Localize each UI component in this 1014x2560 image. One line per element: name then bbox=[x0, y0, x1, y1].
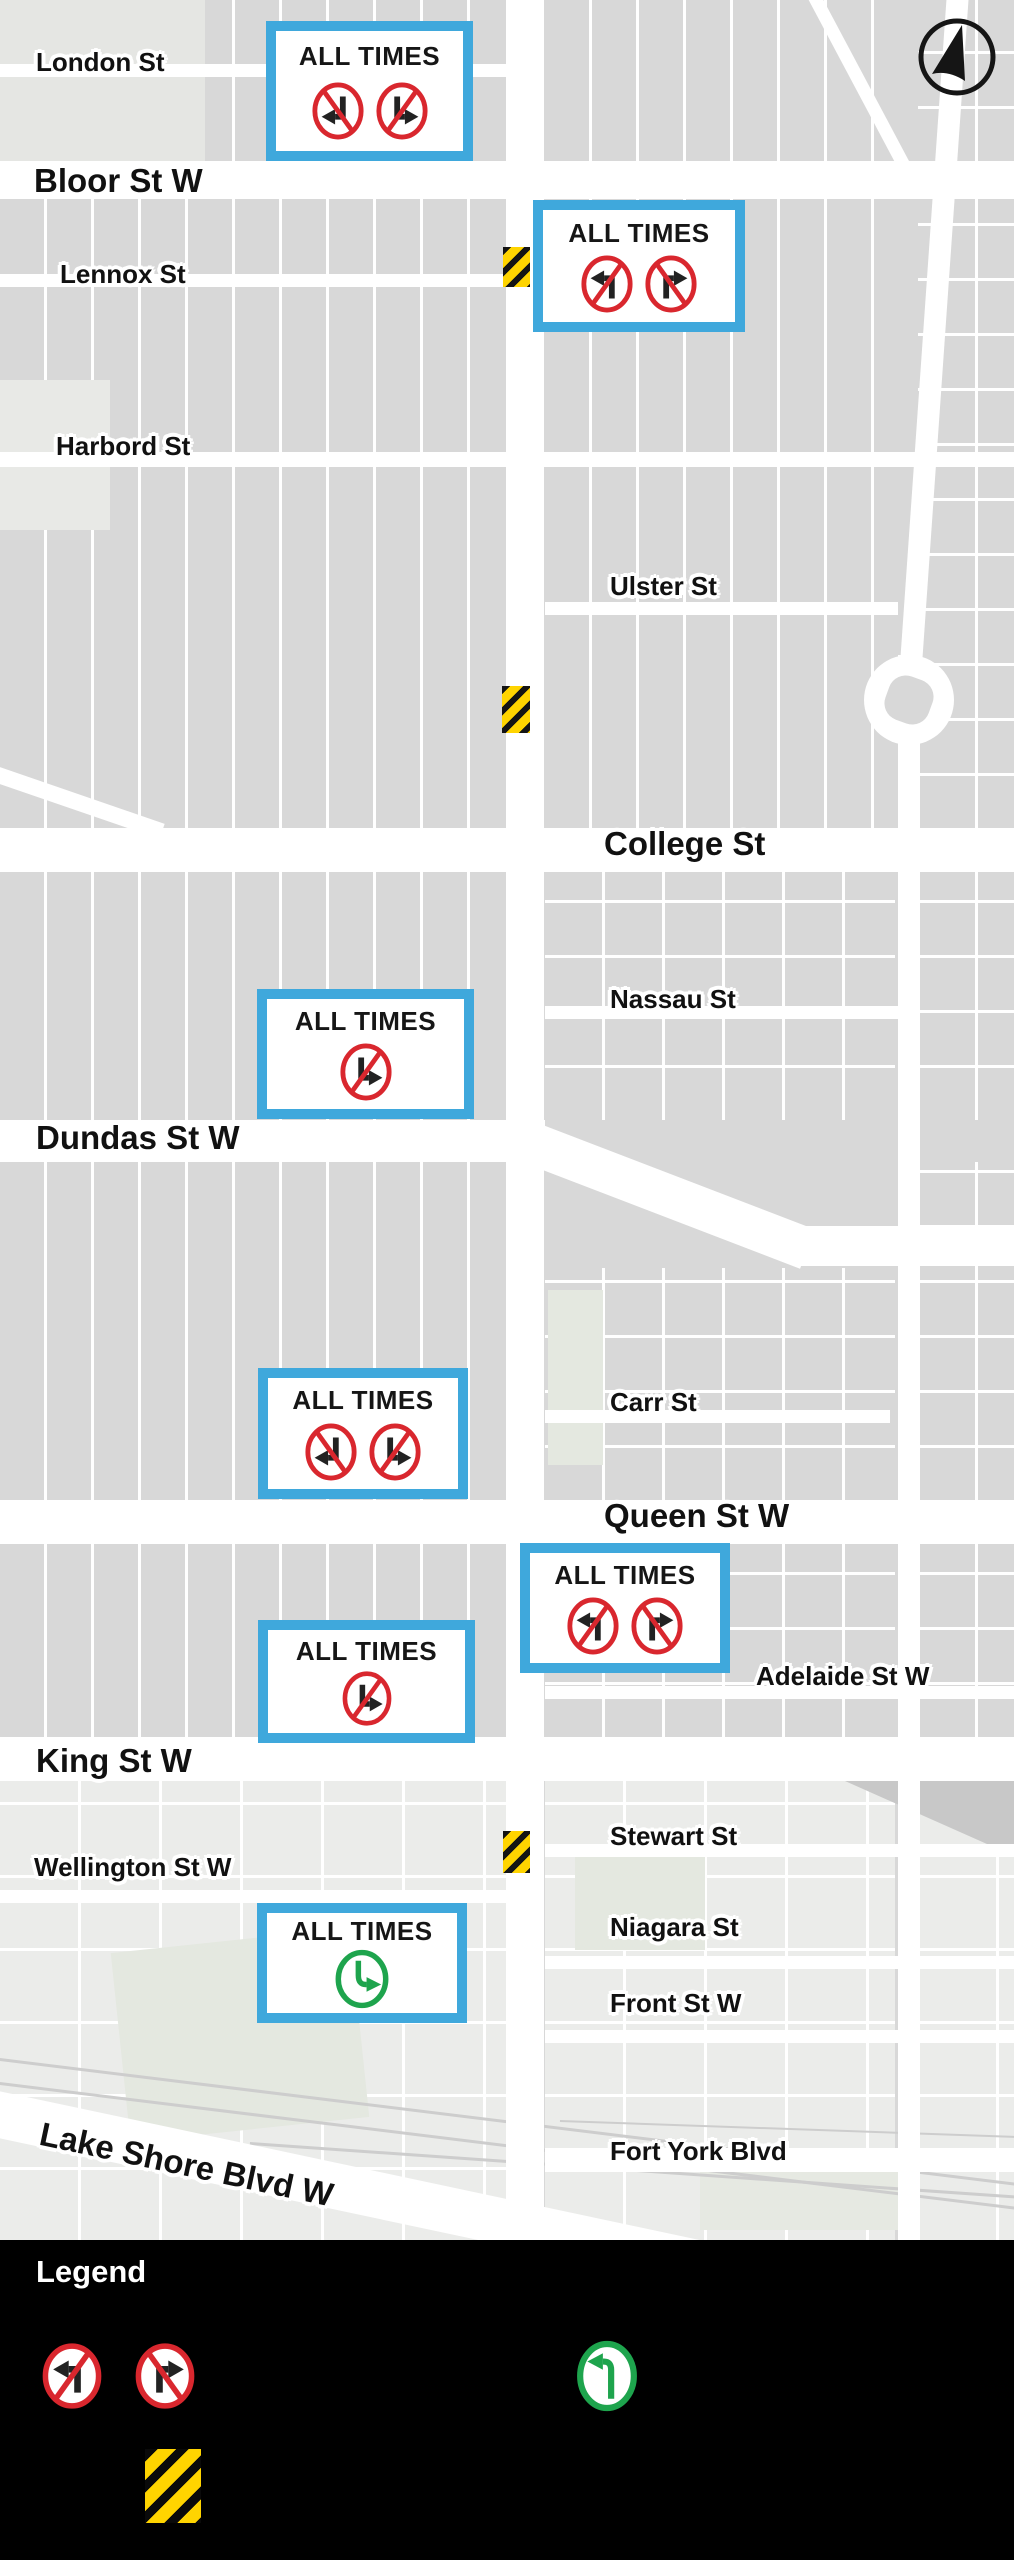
sign-wellington: ALL TIMES bbox=[257, 1903, 467, 2023]
street-label: Carr St bbox=[610, 1388, 697, 1417]
street-label: Stewart St bbox=[610, 1822, 737, 1851]
street-label: Dundas St W bbox=[36, 1120, 240, 1156]
construction-zone-icon bbox=[503, 1831, 530, 1873]
legend-title: Legend bbox=[36, 2254, 146, 2290]
construction-zone-icon bbox=[503, 247, 530, 287]
north-compass-icon bbox=[915, 15, 999, 99]
no-left-turn-icon bbox=[41, 2340, 103, 2412]
street-label: Bloor St W bbox=[34, 163, 203, 199]
left-turn-permitted-down-icon bbox=[332, 1948, 392, 2010]
left-turn-permitted-icon bbox=[575, 2338, 639, 2414]
street-label: Harbord St bbox=[56, 432, 190, 461]
no-right-turn-down-icon bbox=[375, 81, 429, 141]
sign-queen-west: ALL TIMES bbox=[258, 1368, 468, 1499]
sign-label: ALL TIMES bbox=[295, 1006, 436, 1037]
map-blocks bbox=[545, 0, 895, 161]
sign-label: ALL TIMES bbox=[554, 1560, 695, 1591]
no-right-turn-icon bbox=[644, 254, 698, 314]
no-right-turn-icon bbox=[134, 2340, 196, 2412]
no-left-turn-icon bbox=[580, 254, 634, 314]
sign-queen-bathurst: ALL TIMES bbox=[520, 1543, 730, 1673]
road-north-south-east bbox=[898, 655, 920, 2240]
road-niagara-st bbox=[545, 1956, 1014, 1969]
map-park bbox=[548, 1290, 603, 1465]
sign-bloor-london: ALL TIMES bbox=[266, 21, 473, 161]
construction-zone-icon bbox=[145, 2449, 201, 2523]
sign-label: ALL TIMES bbox=[568, 218, 709, 249]
street-label: Adelaide St W bbox=[756, 1662, 929, 1691]
road-bathurst-st bbox=[506, 0, 544, 2240]
road-wellington-st-w bbox=[0, 1890, 506, 1903]
map-blocks bbox=[918, 872, 1014, 1120]
street-label: Nassau St bbox=[610, 985, 736, 1014]
traffic-restrictions-map: London St Bloor St W Lennox St Harbord S… bbox=[0, 0, 1014, 2560]
road-carr-st bbox=[545, 1410, 890, 1423]
street-label: London St bbox=[36, 48, 165, 77]
street-label: Niagara St bbox=[610, 1913, 739, 1942]
street-label: Lennox St bbox=[60, 260, 186, 289]
street-label: Wellington St W bbox=[34, 1853, 231, 1882]
no-right-turn-icon bbox=[630, 1596, 684, 1656]
no-left-turn-icon bbox=[566, 1596, 620, 1656]
map-canvas: London St Bloor St W Lennox St Harbord S… bbox=[0, 0, 1014, 2240]
map-blocks bbox=[918, 1544, 1014, 1737]
no-right-turn-down-icon bbox=[341, 1670, 393, 1727]
road-front-st-w bbox=[545, 2030, 1014, 2043]
street-label: College St bbox=[604, 826, 765, 862]
sign-bloor-bathurst: ALL TIMES bbox=[533, 200, 745, 332]
no-right-turn-down-icon bbox=[339, 1042, 393, 1102]
sign-king: ALL TIMES bbox=[258, 1620, 475, 1743]
sign-label: ALL TIMES bbox=[292, 1385, 433, 1416]
map-open-area bbox=[0, 0, 205, 161]
sign-label: ALL TIMES bbox=[299, 41, 440, 72]
street-label: Front St W bbox=[610, 1989, 741, 2018]
sign-label: ALL TIMES bbox=[296, 1636, 437, 1667]
no-left-turn-down-icon bbox=[311, 81, 365, 141]
road-dundas-st-w bbox=[520, 1122, 815, 1269]
no-right-turn-down-icon bbox=[368, 1422, 422, 1482]
no-left-turn-down-icon bbox=[304, 1422, 358, 1482]
street-label: Queen St W bbox=[604, 1498, 789, 1534]
construction-zone-icon bbox=[502, 686, 530, 733]
road-ulster-st bbox=[545, 602, 898, 615]
sign-dundas: ALL TIMES bbox=[257, 989, 474, 1119]
street-label: Fort York Blvd bbox=[610, 2137, 787, 2166]
sign-label: ALL TIMES bbox=[291, 1916, 432, 1947]
legend-panel: Legend bbox=[0, 2240, 1014, 2560]
street-label: King St W bbox=[36, 1743, 192, 1779]
street-label: Ulster St bbox=[610, 572, 717, 601]
map-blocks bbox=[918, 1162, 1014, 1500]
